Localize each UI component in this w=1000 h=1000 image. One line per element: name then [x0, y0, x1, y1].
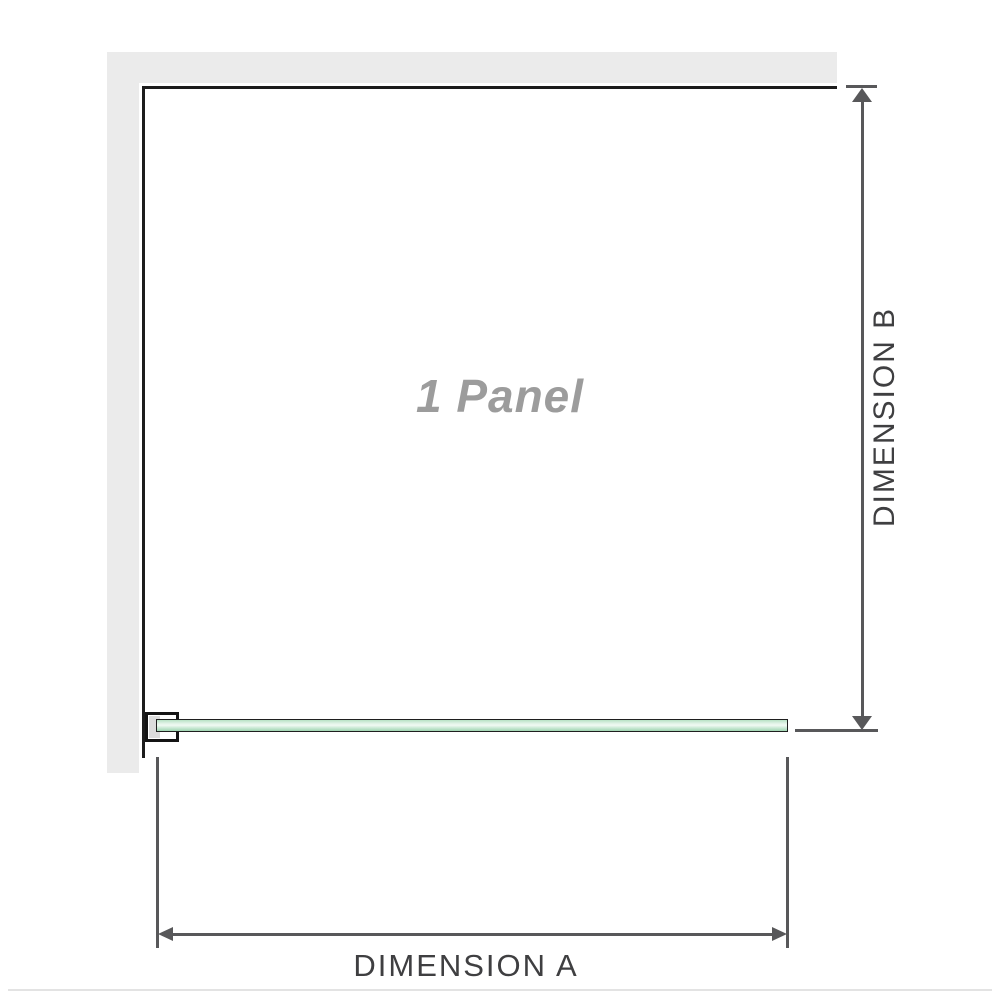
dimension-b-line: [861, 96, 864, 721]
panel-dimension-diagram: 1 Panel DIMENSION B DIMENSION A: [0, 0, 1000, 1000]
wall-top-band: [107, 52, 837, 83]
arrow-right-icon: [772, 927, 787, 941]
dimension-b-label: DIMENSION B: [868, 307, 902, 527]
dimension-a-label: DIMENSION A: [353, 948, 578, 984]
arrow-down-icon: [852, 716, 872, 730]
dimension-a-line: [162, 933, 782, 936]
arrow-up-icon: [852, 88, 872, 102]
wall-left-band: [107, 52, 139, 773]
glass-panel-edge: [156, 719, 788, 732]
dimension-a-tick-left: [156, 757, 159, 948]
panel-outline-top: [142, 86, 837, 89]
panel-outline-left: [142, 86, 145, 758]
panel-count-label: 1 Panel: [416, 369, 584, 423]
arrow-left-icon: [158, 927, 173, 941]
bottom-divider: [8, 989, 992, 991]
dimension-a-tick-right: [786, 757, 789, 948]
